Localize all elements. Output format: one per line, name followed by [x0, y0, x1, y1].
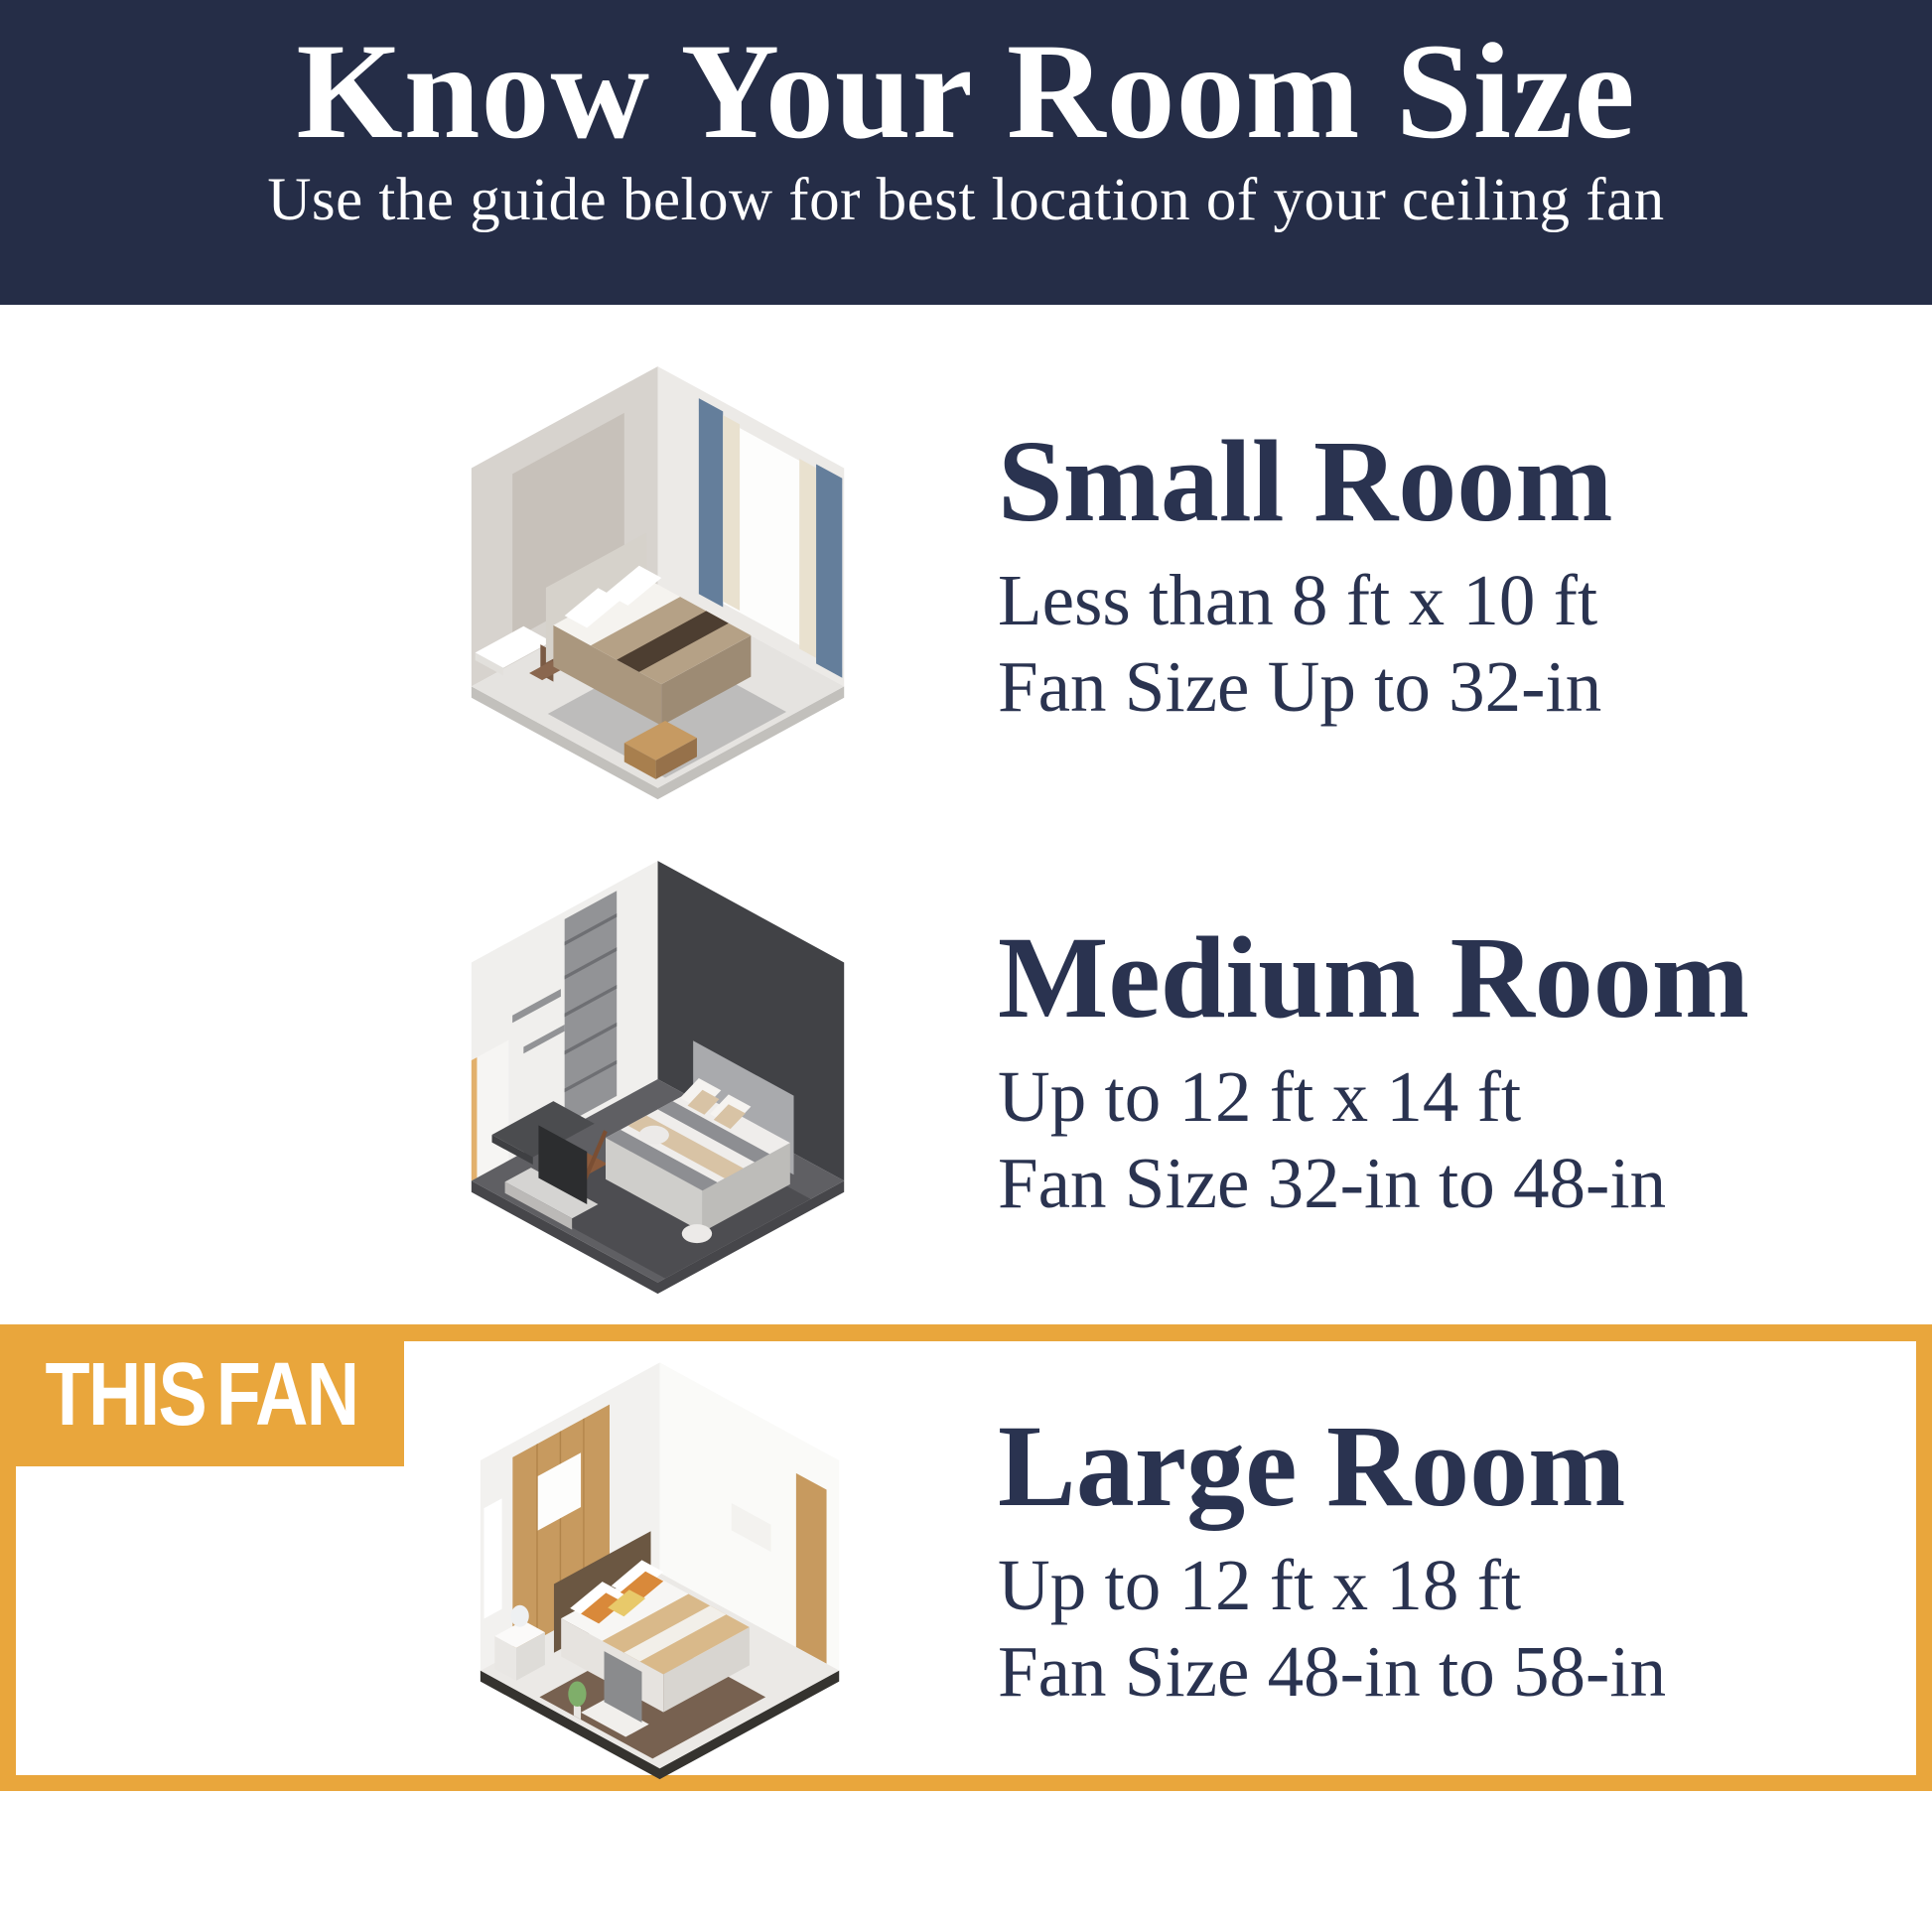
medium-bedroom-isometric-image	[425, 844, 892, 1296]
small-room-fan-size: Fan Size Up to 32-in	[998, 643, 1906, 731]
room-size-infographic: Know Your Room Size Use the guide below …	[0, 0, 1932, 1932]
header-banner: Know Your Room Size Use the guide below …	[0, 0, 1932, 305]
large-room-illustration	[427, 1346, 894, 1781]
large-room-text: Large Room Up to 12 ft x 18 ft Fan Size …	[998, 1406, 1906, 1716]
this-fan-badge: THIS FAN	[0, 1324, 404, 1466]
small-room-illustration	[425, 349, 892, 801]
page-subtitle: Use the guide below for best location of…	[0, 170, 1932, 230]
large-room-fan-size: Fan Size 48-in to 58-in	[998, 1628, 1906, 1716]
medium-room-illustration	[425, 844, 892, 1296]
large-bedroom-isometric-image	[427, 1346, 894, 1781]
this-fan-label: THIS FAN	[46, 1344, 358, 1447]
large-room-title: Large Room	[998, 1406, 1906, 1528]
small-room-text: Small Room Less than 8 ft x 10 ft Fan Si…	[998, 421, 1906, 731]
small-room-dimensions: Less than 8 ft x 10 ft	[998, 557, 1906, 644]
medium-room-title: Medium Room	[998, 917, 1906, 1039]
medium-room-text: Medium Room Up to 12 ft x 14 ft Fan Size…	[998, 917, 1906, 1227]
large-room-dimensions: Up to 12 ft x 18 ft	[998, 1542, 1906, 1629]
medium-room-fan-size: Fan Size 32-in to 48-in	[998, 1140, 1906, 1227]
page-title: Know Your Room Size	[0, 0, 1932, 162]
small-bedroom-isometric-image	[425, 349, 892, 801]
small-room-title: Small Room	[998, 421, 1906, 543]
medium-room-dimensions: Up to 12 ft x 14 ft	[998, 1053, 1906, 1141]
